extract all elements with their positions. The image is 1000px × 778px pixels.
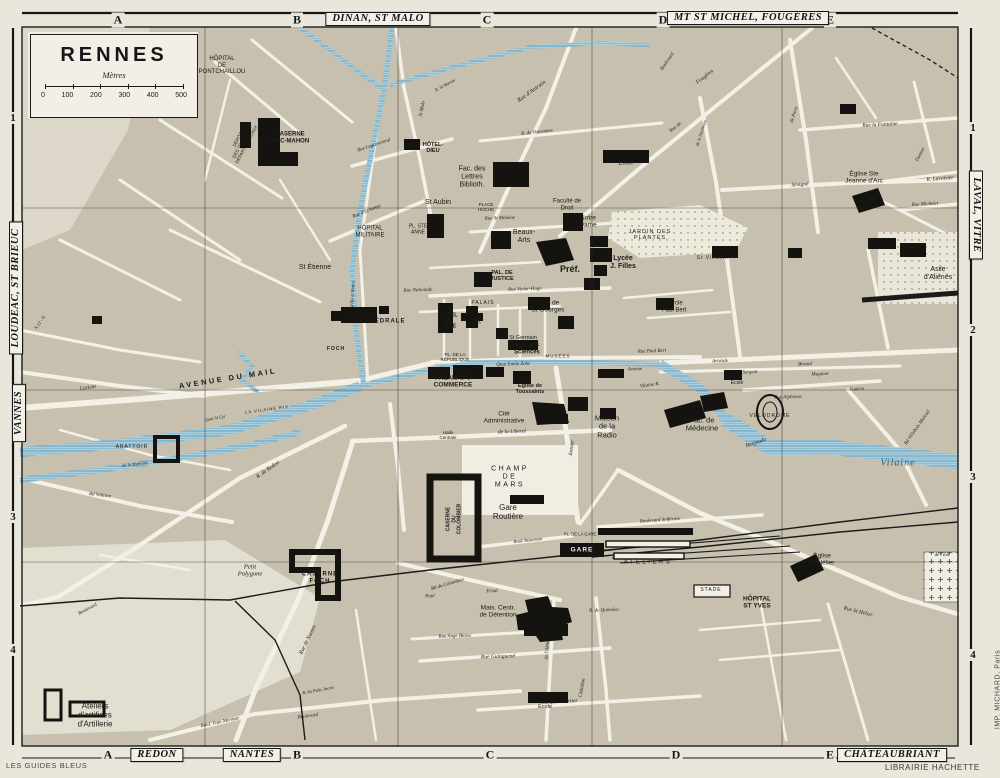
map-title: RENNES xyxy=(31,44,197,67)
scale-tick-label: 200 xyxy=(90,92,102,99)
scale-tick xyxy=(155,84,156,89)
scale-tick xyxy=(73,84,74,89)
scale-unit-label: Mètres xyxy=(31,70,197,80)
publisher-right: LIBRAIRIE HACHETTE xyxy=(885,763,980,772)
scale-tick xyxy=(183,84,184,89)
printer-credit: IMP. MICHARD, Paris xyxy=(995,640,1000,740)
scale-tick-label: 100 xyxy=(62,92,74,99)
scale-tick-label: 300 xyxy=(118,92,130,99)
scale-tick xyxy=(45,84,46,89)
scale-tick-labels: 0100200300400500 xyxy=(41,92,187,99)
publisher-left: LES GUIDES BLEUS xyxy=(6,761,87,770)
scale-tick xyxy=(128,84,129,89)
title-box: RENNES Mètres 0100200300400500 xyxy=(30,34,198,118)
map-page: HÔPITAL DE PONTCHAILLOUCASERNE MAC-MAHON… xyxy=(0,0,1000,778)
scale-tick-label: 0 xyxy=(41,92,45,99)
scale-tick xyxy=(100,84,101,89)
scale-bar xyxy=(45,86,183,92)
scale-tick-label: 400 xyxy=(147,92,159,99)
scale-tick-label: 500 xyxy=(175,92,187,99)
